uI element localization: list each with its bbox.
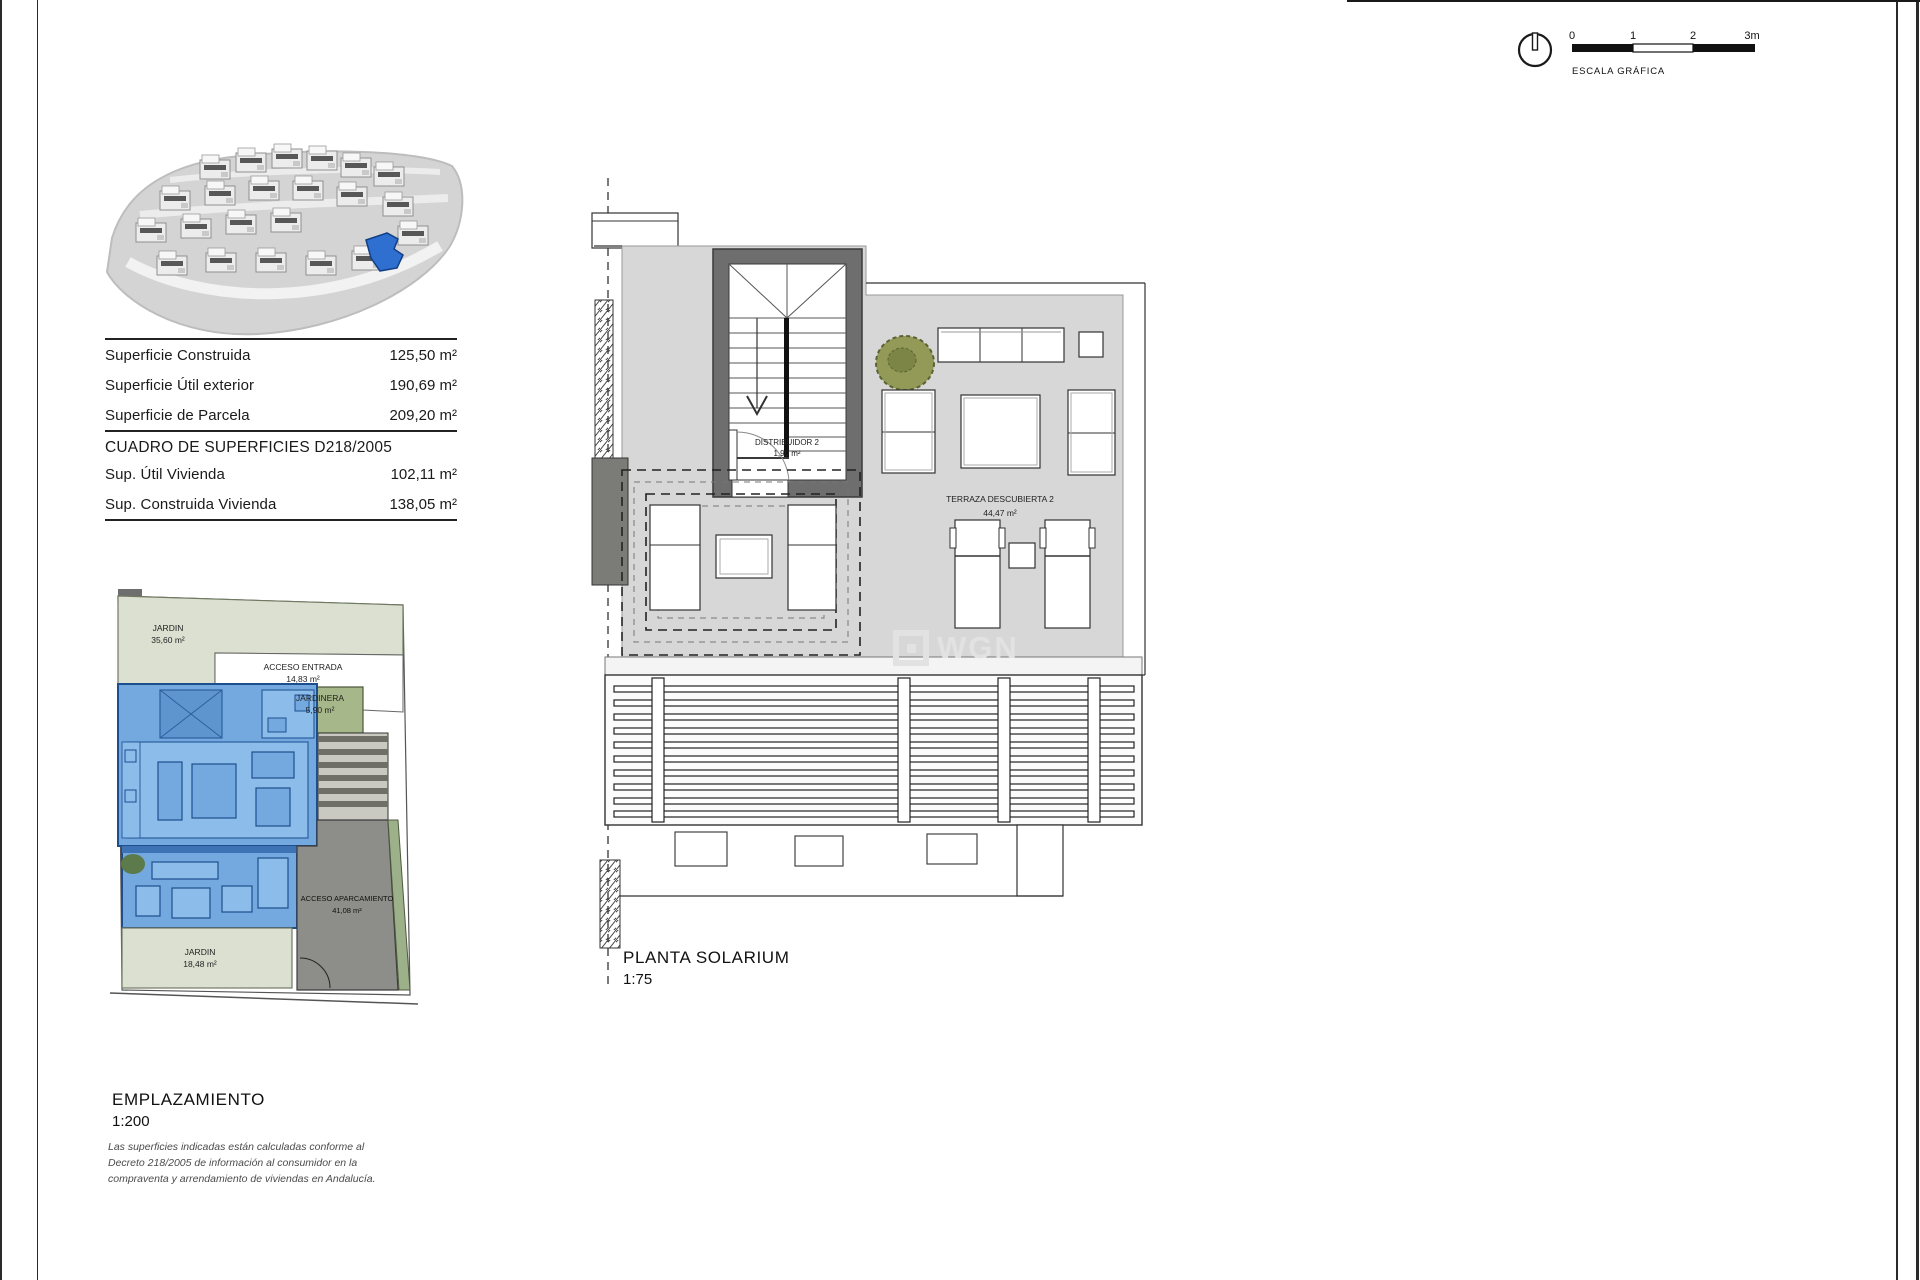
row-label: Sup. Útil Vivienda — [105, 466, 225, 483]
stair-core — [713, 249, 862, 497]
surfaces-table: Superficie Construida 125,50 m² Superfic… — [105, 338, 457, 521]
table-rule-bottom — [105, 519, 457, 521]
row-value: 138,05 m² — [389, 496, 457, 513]
center-table — [961, 395, 1040, 468]
pergola-lounger-right — [788, 505, 836, 610]
tree-icon — [876, 336, 934, 390]
watermark: WGN — [893, 630, 1019, 666]
drawing-title: PLANTA SOLARIUM — [623, 948, 789, 968]
lounger-table — [1009, 543, 1035, 568]
scale-bar: 0 1 2 3m ESCALA GRÁFICA — [1500, 20, 1780, 82]
room-label: TERRAZA DESCUBIERTA 2 — [946, 494, 1054, 504]
site-title-block: EMPLAZAMIENTO 1:200 — [112, 1090, 265, 1130]
party-wall-hatch-lower — [600, 860, 620, 948]
area-value: 5,90 m² — [306, 705, 335, 715]
graphic-scale-bar — [1572, 44, 1755, 52]
watermark-text: WGN — [937, 630, 1019, 666]
dwelling-terrace-blue — [121, 846, 297, 928]
room-label: DISTRIBUIDOR 2 — [755, 438, 820, 447]
site-plan-drawing: JARDIN 35,60 m² ACCESO ENTRADA 14,83 m² … — [90, 575, 430, 1020]
parking-access-area — [297, 820, 398, 990]
dwelling-floorplan-blue — [118, 684, 317, 846]
drawing-scale: 1:200 — [112, 1113, 265, 1130]
row-value: 190,69 m² — [389, 377, 457, 394]
annex-box — [592, 213, 678, 248]
sheet-border-left-inner — [37, 0, 38, 1280]
bench-seat — [938, 328, 1064, 362]
lounge-chair-right — [1068, 390, 1115, 475]
sheet-border-right-outer — [1916, 0, 1919, 1280]
party-wall-hatch-upper — [595, 300, 613, 458]
scale-tick-2: 2 — [1690, 30, 1696, 42]
watermark-icon — [893, 630, 929, 666]
exterior-stairs — [318, 733, 388, 820]
scale-tick-1: 1 — [1630, 30, 1636, 42]
drawing-title: EMPLAZAMIENTO — [112, 1090, 265, 1110]
area-value: 18,48 m² — [183, 959, 217, 969]
area-value: 14,83 m² — [286, 674, 320, 684]
drawing-scale: 1:75 — [623, 971, 789, 988]
pergola-table — [716, 535, 772, 578]
sheet-border-top — [1347, 0, 1920, 2]
row-label: Sup. Construida Vivienda — [105, 496, 276, 513]
row-label: Superficie Útil exterior — [105, 377, 254, 394]
sheet-border-right-inner — [1896, 0, 1898, 1280]
table-row: Superficie de Parcela 209,20 m² — [105, 400, 457, 430]
room-area: 44,47 m² — [983, 508, 1017, 518]
lounge-chair-left — [882, 390, 935, 473]
side-table — [1079, 332, 1103, 357]
slat-deck — [605, 657, 1142, 825]
area-label: JARDIN — [153, 623, 184, 633]
area-label: ACCESO APARCAMIENTO — [301, 894, 394, 903]
scale-tick-0: 0 — [1569, 30, 1575, 42]
area-value: 35,60 m² — [151, 635, 185, 645]
table-row: Superficie Construida 125,50 m² — [105, 340, 457, 370]
deck-footings — [675, 832, 977, 866]
area-label: ACCESO ENTRADA — [264, 662, 343, 672]
row-label: Superficie de Parcela — [105, 407, 250, 424]
table-row: Sup. Útil Vivienda 102,11 m² — [105, 459, 457, 489]
row-value: 102,11 m² — [391, 466, 457, 483]
area-label: JARDINERA — [296, 693, 345, 703]
deck-pier — [1017, 825, 1063, 896]
area-label: JARDIN — [185, 947, 216, 957]
disclaimer-text: Las superficies indicadas están calculad… — [108, 1140, 380, 1187]
table-row: Superficie Útil exterior 190,69 m² — [105, 370, 457, 400]
table-section-title: CUADRO DE SUPERFICIES D218/2005 — [105, 432, 457, 459]
row-value: 125,50 m² — [389, 347, 457, 364]
room-area: 1,90 m² — [773, 449, 800, 458]
north-indicator-icon — [1519, 33, 1551, 66]
area-value: 41,08 m² — [332, 906, 362, 915]
scale-bar-title: ESCALA GRÁFICA — [1572, 66, 1665, 77]
scale-tick-3m: 3m — [1744, 30, 1759, 42]
plan-sheet: { "watermark": "WGN", "scale_bar": { "ti… — [0, 0, 1920, 1280]
sheet-border-left-outer — [0, 0, 2, 1280]
garden-bottom-area — [122, 928, 292, 988]
pergola-lounger-left — [650, 505, 700, 610]
row-value: 209,20 m² — [389, 407, 457, 424]
sun-lounger-left — [950, 520, 1005, 628]
table-row: Sup. Construida Vivienda 138,05 m² — [105, 489, 457, 519]
solarium-title-block: PLANTA SOLARIUM 1:75 — [623, 948, 789, 988]
row-label: Superficie Construida — [105, 347, 251, 364]
solarium-plan-drawing: DISTRIBUIDOR 2 1,90 m² TERRAZA DESCUBIER… — [560, 160, 1280, 1000]
site-overview-3d — [95, 125, 475, 345]
sun-lounger-right — [1040, 520, 1095, 628]
